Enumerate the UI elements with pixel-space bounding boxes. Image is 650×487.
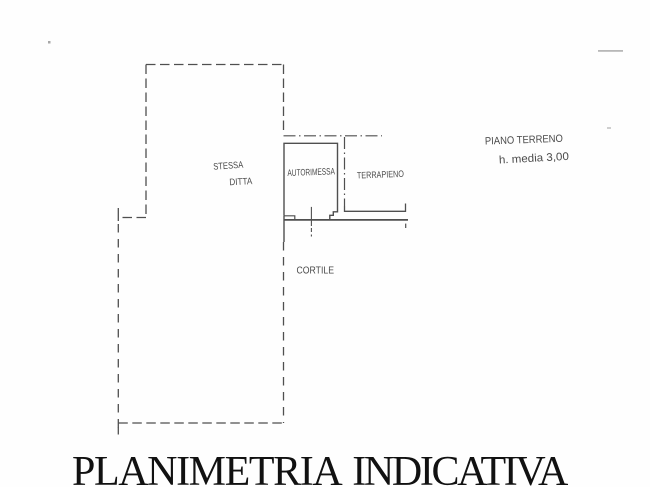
svg-text:STESSA: STESSA: [213, 160, 244, 173]
svg-text:PIANO TERRENO: PIANO TERRENO: [485, 133, 563, 148]
svg-text:AUTORIMESSA: AUTORIMESSA: [287, 166, 335, 178]
svg-text:DITTA: DITTA: [229, 176, 253, 188]
svg-text:CORTILE: CORTILE: [297, 265, 335, 277]
svg-text:h. media 3,00: h. media 3,00: [499, 151, 570, 167]
svg-text:TERRAPIENO: TERRAPIENO: [357, 169, 404, 181]
